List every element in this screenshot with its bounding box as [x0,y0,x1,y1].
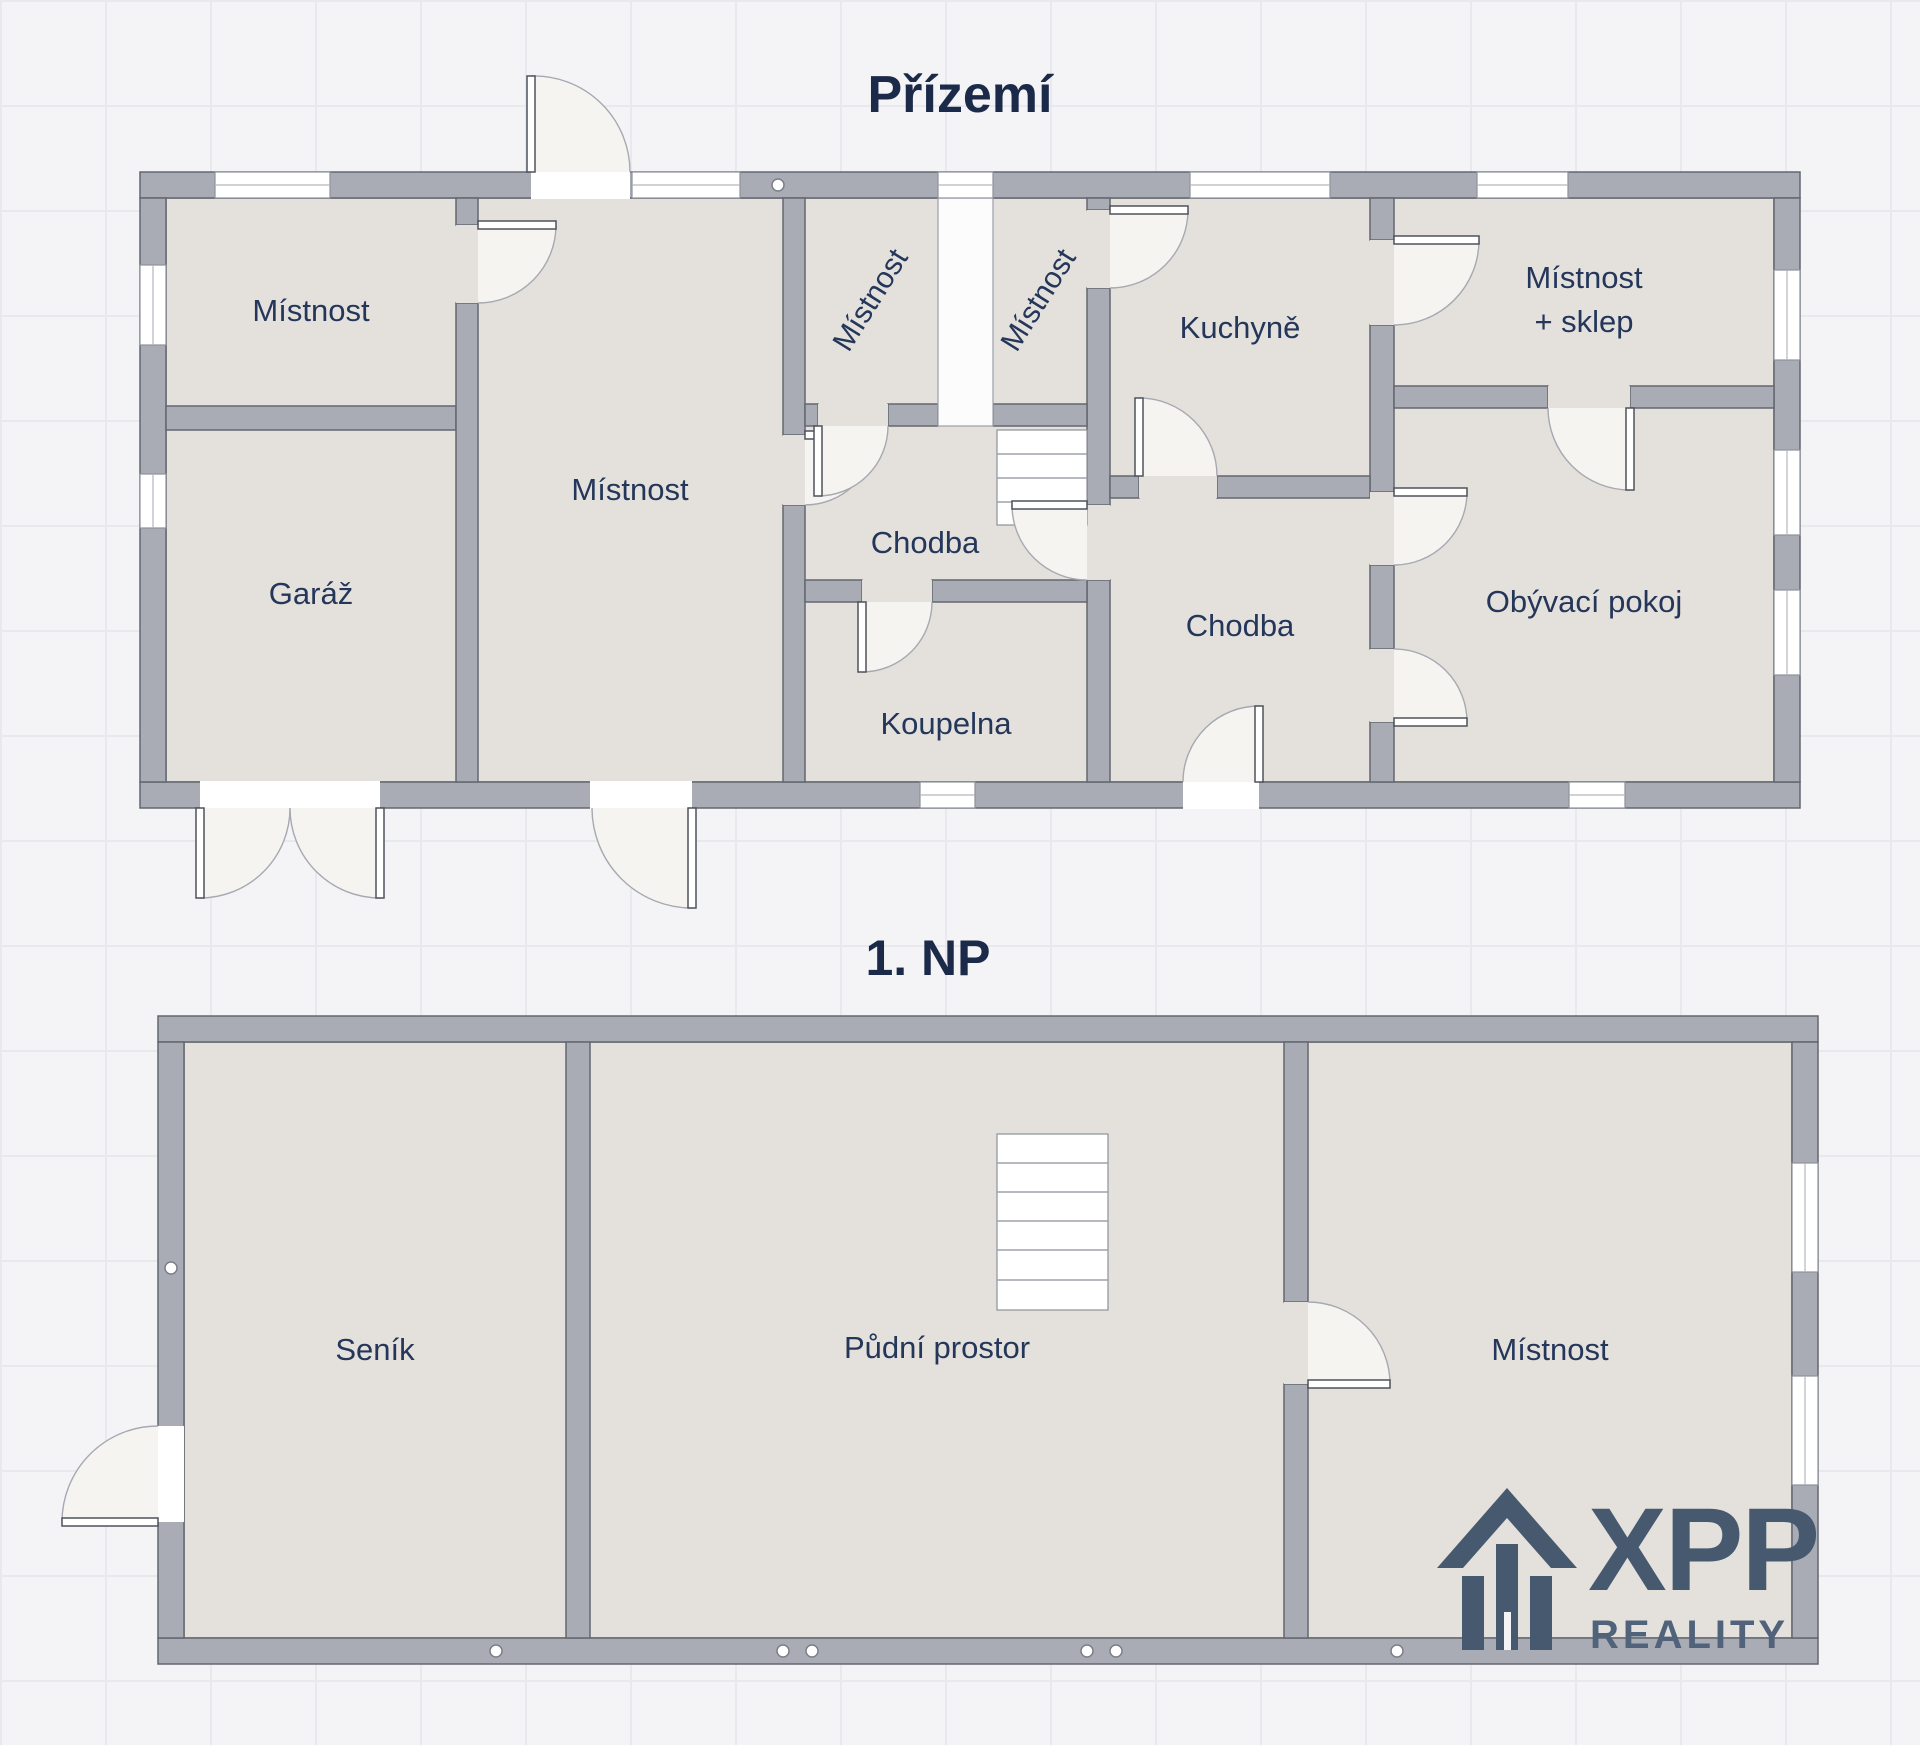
window-icon [140,265,166,345]
light-shaft [938,198,993,426]
title-ground-floor: Přízemí [868,66,1055,124]
logo-sub-text: REALITY [1590,1613,1789,1657]
room-label-attic: Půdní prostor [844,1330,1030,1365]
room-label-hall-1: Chodba [871,525,980,560]
room-label-cellar-line2: + sklep [1534,304,1633,339]
garage-door-icon [196,808,384,898]
room-label-tl: Místnost [252,293,370,328]
window-icon [1774,270,1800,360]
door-icon [592,808,696,908]
door-icon [62,1426,158,1526]
room-label-kitchen: Kuchyně [1180,310,1301,345]
attic-staircase-icon [997,1134,1108,1310]
window-icon [1774,450,1800,535]
wall-joint-dot [772,179,784,191]
window-icon [1190,172,1330,198]
room-label-big: Místnost [571,472,689,507]
logo-brand-text: XPP [1588,1484,1818,1616]
room-label-living: Obývací pokoj [1486,584,1682,619]
window-icon [632,172,740,198]
window-icon [1569,782,1625,808]
room-label-bathroom: Koupelna [880,706,1012,741]
window-icon [1477,172,1568,198]
window-icon [920,782,975,808]
window-icon [1792,1376,1818,1485]
window-icon [215,172,330,198]
window-icon [1792,1163,1818,1272]
room-label-hall-2: Chodba [1186,608,1295,643]
window-icon [1774,590,1800,675]
window-icon [140,474,166,528]
room-label-cellar-line1: Místnost [1525,260,1643,295]
title-upper-floor: 1. NP [865,930,990,986]
window-icon [938,172,993,198]
floor-plan-canvas: Přízemí 1. NP [0,0,1920,1745]
room-label-garage: Garáž [269,576,353,611]
ground-floor-plan: Místnost Garáž Místnost Místnost Místnos… [140,76,1800,908]
room-label-hayloft: Seník [335,1332,415,1367]
door-icon [527,76,630,172]
room-label-upper-room: Místnost [1491,1332,1609,1367]
